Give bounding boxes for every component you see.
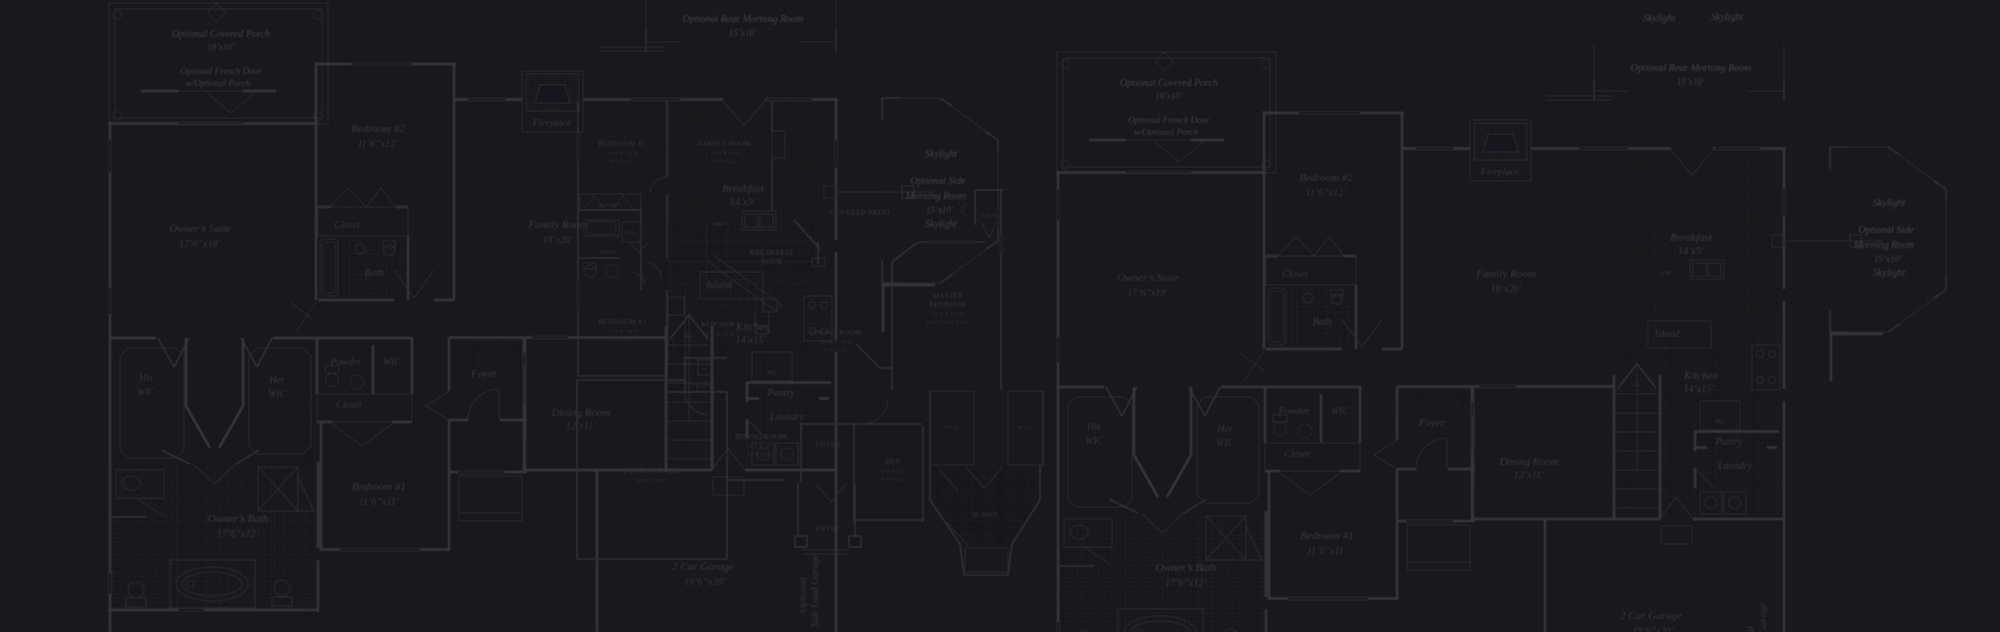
svg-text:w/Optional Porch: w/Optional Porch — [186, 78, 251, 88]
svg-text:2 Car Garage: 2 Car Garage — [672, 561, 734, 573]
svg-text:Skylight: Skylight — [925, 219, 957, 230]
svg-text:Owner’s Suite: Owner’s Suite — [169, 223, 231, 235]
svg-text:Owner’s Bath: Owner’s Bath — [208, 513, 269, 525]
svg-text:Foyer: Foyer — [470, 368, 498, 380]
svg-text:His: His — [138, 373, 153, 384]
svg-text:Optional Side: Optional Side — [910, 176, 966, 187]
svg-text:UTILITY: UTILITY — [688, 384, 712, 390]
svg-text:BEDROOM: BEDROOM — [929, 301, 967, 309]
svg-text:LIN.: LIN. — [625, 230, 637, 236]
svg-text:19’6”x20’: 19’6”x20’ — [684, 577, 726, 588]
svg-text:16’0 X 18’0: 16’0 X 18’0 — [821, 340, 852, 346]
svg-text:BATH: BATH — [981, 213, 997, 219]
svg-text:14’x9’: 14’x9’ — [730, 197, 757, 208]
svg-text:11’0 X 10’0: 11’0 X 10’0 — [607, 329, 637, 335]
svg-text:MASTER: MASTER — [933, 292, 964, 300]
svg-text:Side Load Garage: Side Load Garage — [810, 554, 821, 628]
svg-text:CLOSET: CLOSET — [600, 203, 623, 209]
svg-text:13’4 X 17’10: 13’4 X 17’10 — [931, 312, 965, 318]
svg-text:LIVING ROOM: LIVING ROOM — [810, 329, 862, 337]
svg-text:Optional: Optional — [798, 577, 809, 613]
svg-text:12’0 CLG.: 12’0 CLG. — [748, 452, 775, 458]
svg-text:W: W — [702, 367, 708, 373]
svg-text:Laundry: Laundry — [769, 412, 804, 423]
svg-text:W.I.C.: W.I.C. — [1017, 425, 1034, 431]
svg-text:15’x10’: 15’x10’ — [926, 205, 954, 215]
svg-text:M. BATH: M. BATH — [973, 512, 997, 518]
svg-text:ENTRY: ENTRY — [816, 525, 841, 533]
svg-text:Bedroom #1: Bedroom #1 — [352, 481, 406, 493]
svg-text:Bedroom #2: Bedroom #2 — [351, 123, 405, 135]
svg-text:FOYER: FOYER — [816, 441, 841, 449]
svg-text:9’0 CLG.: 9’0 CLG. — [610, 159, 634, 165]
svg-text:Optional Covered Porch: Optional Covered Porch — [172, 29, 270, 40]
svg-text:11’0 CLG.: 11’0 CLG. — [712, 159, 739, 165]
svg-text:Closet: Closet — [334, 220, 360, 231]
svg-text:10’0 X 11’2: 10’0 X 11’2 — [878, 469, 908, 475]
svg-text:20’0 X 20’0: 20’0 X 20’0 — [636, 478, 667, 484]
svg-text:11’6”x11’: 11’6”x11’ — [359, 497, 400, 508]
svg-text:Her: Her — [268, 375, 285, 386]
svg-text:11’6”x12’: 11’6”x12’ — [358, 139, 400, 150]
svg-text:2 CAR GARAGE: 2 CAR GARAGE — [623, 467, 678, 475]
svg-text:WIC: WIC — [383, 357, 402, 368]
svg-text:WIC: WIC — [137, 387, 156, 398]
svg-text:11’2 X 12’0: 11’2 X 12’0 — [746, 444, 776, 450]
svg-text:18’x10’: 18’x10’ — [207, 42, 235, 52]
svg-text:9’0 CLG.: 9’0 CLG. — [610, 337, 634, 343]
svg-text:15’0 X 17’6: 15’0 X 17’6 — [710, 151, 741, 157]
svg-text:Optional French Door: Optional French Door — [180, 66, 262, 76]
svg-text:Powder: Powder — [329, 357, 361, 368]
svg-text:Kitchen: Kitchen — [735, 321, 771, 333]
svg-text:Dining Room: Dining Room — [551, 407, 611, 419]
svg-text:Bath: Bath — [365, 268, 384, 279]
svg-text:WIC: WIC — [268, 389, 287, 400]
svg-text:BATH: BATH — [600, 250, 616, 256]
svg-text:Optional Rear Morning Room: Optional Rear Morning Room — [683, 14, 804, 25]
svg-text:17’6”x18’: 17’6”x18’ — [179, 239, 221, 250]
svg-text:BEDROOM #2: BEDROOM #2 — [598, 140, 646, 148]
svg-text:KITCHEN: KITCHEN — [701, 321, 735, 329]
svg-text:W.I.C.: W.I.C. — [944, 425, 961, 431]
svg-text:Closet: Closet — [336, 400, 362, 411]
svg-text:Breakfast: Breakfast — [722, 183, 765, 195]
svg-text:DINING ROOM: DINING ROOM — [735, 433, 787, 441]
svg-text:Pantry: Pantry — [766, 388, 795, 399]
svg-text:15’x10’: 15’x10’ — [729, 28, 757, 38]
svg-text:10’4 X 12’0: 10’4 X 12’0 — [703, 332, 734, 338]
svg-text:10’0 TRAY CLG.: 10’0 TRAY CLG. — [926, 320, 971, 326]
svg-text:BREAKFAST: BREAKFAST — [750, 249, 794, 257]
svg-text:17’6”x12’: 17’6”x12’ — [217, 529, 259, 540]
svg-text:BEDROOM #3: BEDROOM #3 — [598, 318, 646, 326]
svg-text:9’0 CLG.: 9’0 CLG. — [824, 348, 848, 354]
svg-text:11’0 X 12’6: 11’0 X 12’6 — [607, 151, 637, 157]
svg-text:Skylight: Skylight — [925, 149, 957, 160]
svg-text:18’x20’: 18’x20’ — [542, 235, 574, 246]
svg-text:Ref.: Ref. — [766, 369, 778, 376]
svg-text:Morning Room: Morning Room — [905, 191, 967, 202]
svg-text:FAMILY ROOM: FAMILY ROOM — [699, 140, 752, 148]
svg-text:NOOK: NOOK — [761, 258, 783, 266]
svg-text:COVERED PATIO: COVERED PATIO — [830, 209, 889, 217]
svg-text:DEN: DEN — [885, 458, 901, 466]
svg-text:12’x11’: 12’x11’ — [566, 421, 597, 432]
svg-text:Fireplace: Fireplace — [532, 118, 572, 129]
svg-text:9’0 CLG.: 9’0 CLG. — [881, 477, 905, 483]
svg-text:14’x15’: 14’x15’ — [735, 335, 767, 346]
